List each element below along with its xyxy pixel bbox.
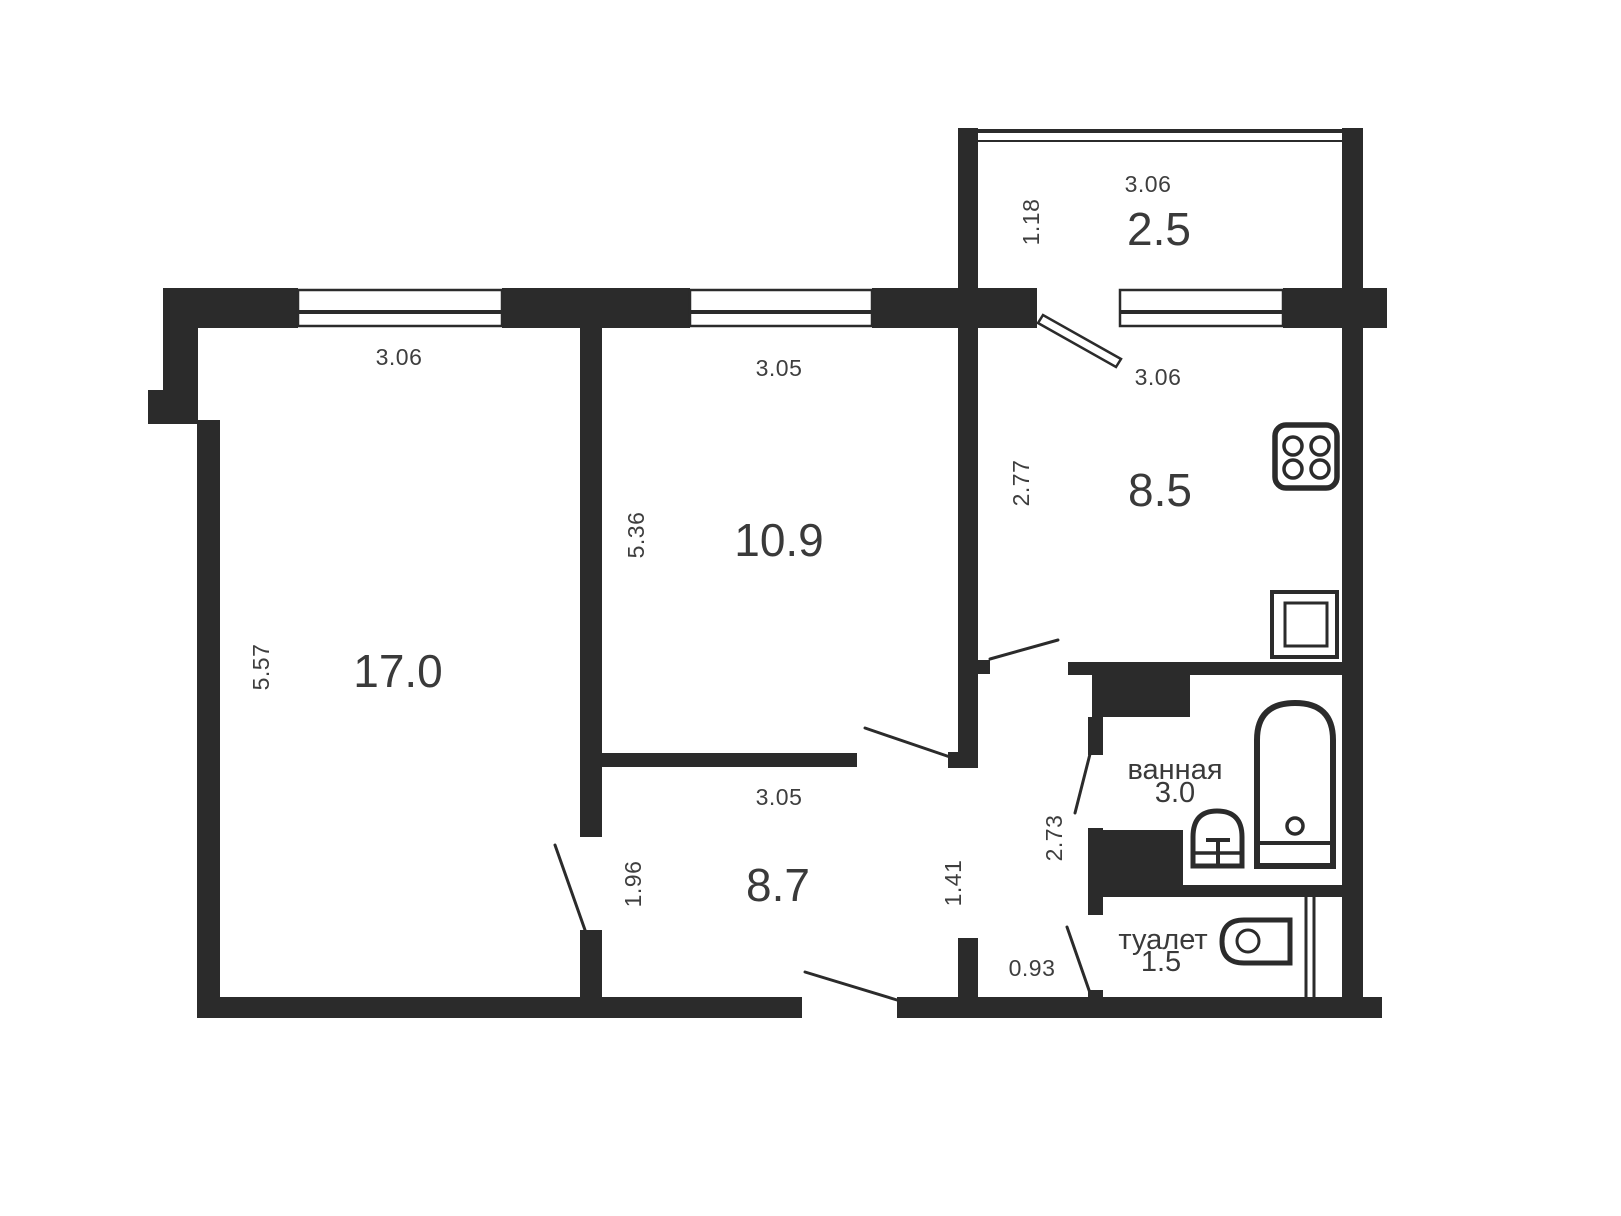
bathroom-area-label: 3.0 (1155, 777, 1195, 809)
fixtures (1193, 425, 1337, 997)
bathtub-icon (1257, 703, 1333, 866)
bedroom-area-label: 10.9 (734, 514, 824, 566)
window-bedroom (690, 290, 872, 326)
hallway-dim-right: 1.41 (940, 860, 966, 907)
hallway-dim-top: 3.05 (756, 784, 803, 810)
wall-left-lower (197, 420, 220, 1018)
window-kitchen-balcony (1120, 290, 1283, 326)
bedroom-dim-top: 3.05 (756, 355, 803, 381)
wall-bedroom-hall (602, 753, 857, 767)
living-dim-left: 5.57 (248, 644, 274, 691)
balcony-dim-top: 3.06 (1125, 171, 1172, 197)
wall-bathroom-left-upper (1088, 717, 1103, 755)
wall-top-corner-block (1283, 288, 1387, 328)
wall-living-divider (580, 328, 602, 837)
hallway-dim-left: 1.96 (620, 861, 646, 908)
living-area-label: 17.0 (353, 645, 443, 697)
kitchen-sink-icon (1272, 592, 1337, 657)
wall-kitchen-bottom (1068, 662, 1342, 675)
balcony-dim-left: 1.18 (1018, 199, 1044, 246)
balcony-wall-left (958, 128, 978, 288)
kitchen-dim-top: 3.06 (1135, 364, 1182, 390)
toilet-area-label: 1.5 (1141, 946, 1181, 978)
balcony-wall-right (1342, 128, 1363, 288)
toilet-bowl-icon (1222, 920, 1290, 963)
door-bathroom (1075, 754, 1090, 813)
window-living (298, 290, 502, 326)
wall-entry-stub (958, 938, 978, 997)
wall-kitchen-hall (958, 328, 978, 768)
washbasin-icon (1193, 811, 1242, 866)
wall-living-door-stub (580, 930, 602, 997)
hallway-area-label: 8.7 (746, 859, 810, 911)
wall-bottom-right (897, 997, 1382, 1018)
balcony-area-label: 2.5 (1127, 203, 1191, 255)
wall-top-mid (502, 288, 690, 328)
stove-icon (1275, 425, 1337, 488)
floor-plan: 3.06 5.57 17.0 3.05 5.36 10.9 3.06 1.18 … (0, 0, 1621, 1216)
door-bedroom (865, 728, 950, 757)
door-entrance (805, 972, 897, 1000)
wall-kitchen-bottom-stub (978, 660, 990, 674)
kitchen-dim-left: 2.77 (1008, 460, 1034, 507)
kitchen-area-label: 8.5 (1128, 464, 1192, 516)
wall-bathroom-block (1092, 675, 1190, 717)
wall-bath-toilet-block (1088, 830, 1183, 897)
bathroom-dim-left: 2.73 (1041, 815, 1067, 862)
wall-right (1342, 328, 1363, 1018)
wall-top-right (872, 288, 1037, 328)
wall-bottom-left (197, 997, 802, 1018)
door-toilet (1067, 927, 1090, 993)
door-balcony (1038, 315, 1121, 367)
bedroom-dim-left: 5.36 (623, 512, 649, 559)
wall-bath-toilet-thin (1183, 885, 1342, 897)
door-kitchen (990, 640, 1058, 659)
toilet-dim-left: 0.93 (1009, 955, 1056, 981)
living-dim-top: 3.06 (376, 344, 423, 370)
wall-left-notch (148, 390, 198, 424)
shaft-lines (1306, 897, 1314, 997)
door-living (555, 845, 585, 930)
